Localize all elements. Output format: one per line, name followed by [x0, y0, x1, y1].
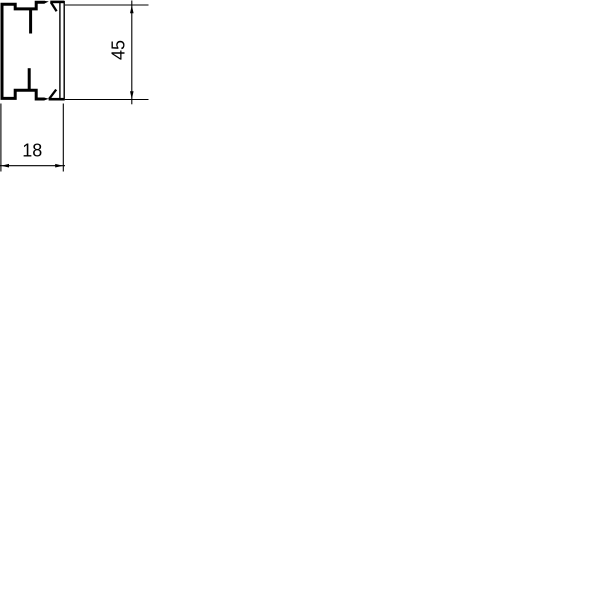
base-bottom-lip-wedge: [44, 98, 49, 101]
base-top-lip-wedge: [44, 1, 49, 4]
width-dimension-label: 18: [22, 141, 42, 161]
height-arrow-top: [130, 5, 134, 13]
height-arrow-bottom: [130, 91, 134, 99]
width-arrow-right: [55, 164, 63, 168]
cover-top-barb: [51, 2, 57, 11]
cover-bottom-barb: [49, 90, 56, 99]
technical-drawing-canvas: 45 18: [0, 0, 600, 600]
trunking-profile-group: [2, 1, 64, 101]
width-arrow-left: [1, 164, 9, 168]
drawing-page: 45 18: [0, 0, 600, 600]
base-outline: [2, 2, 45, 99]
height-dimension-label: 45: [109, 40, 129, 60]
